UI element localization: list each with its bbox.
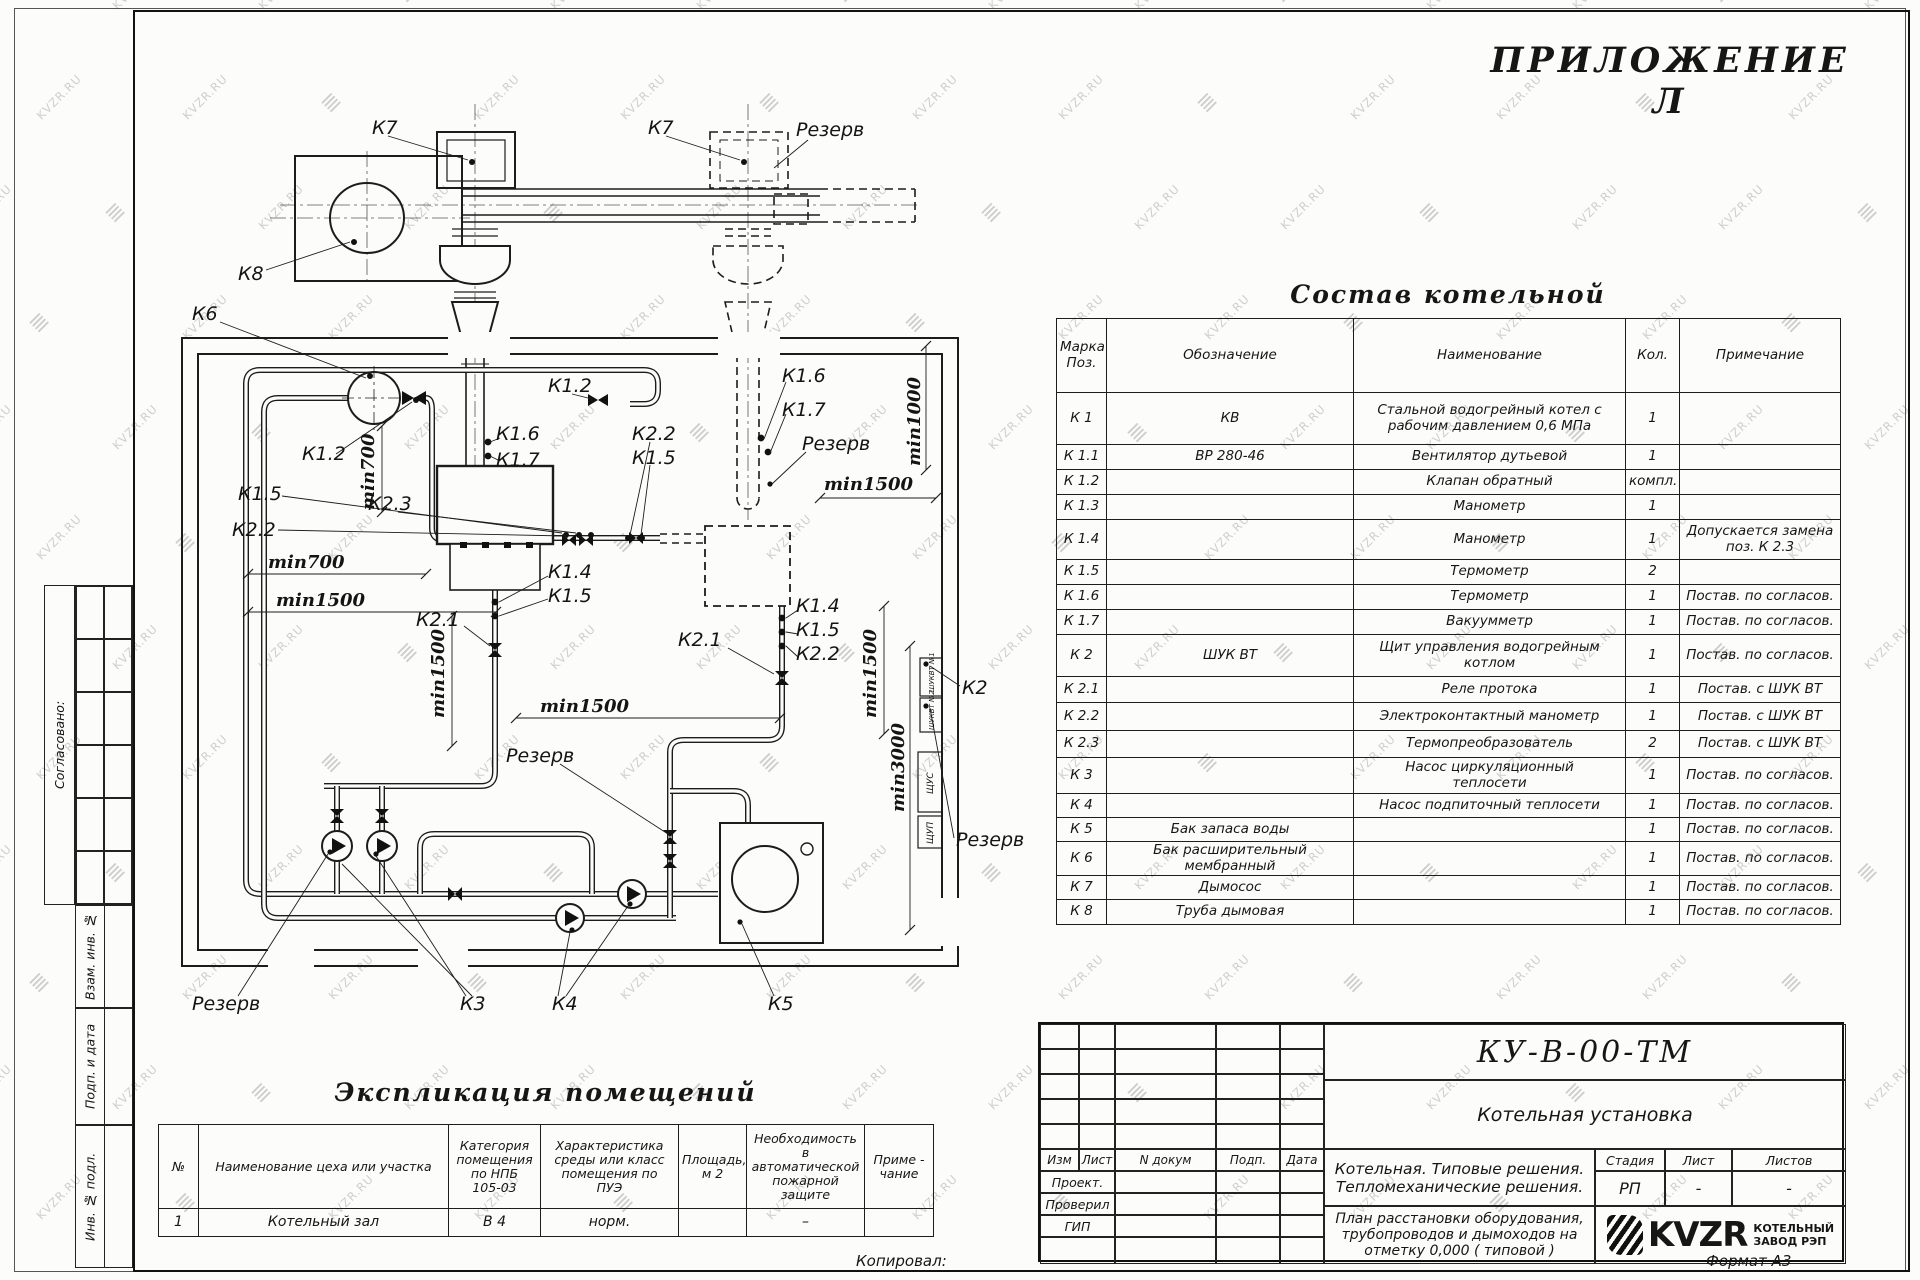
title-block-cell <box>1280 1237 1324 1264</box>
table-cell: К 1.6 <box>1057 585 1107 610</box>
column-header: № <box>159 1125 199 1209</box>
title-block-cell <box>1040 1024 1079 1049</box>
title-block-cell: Лист <box>1079 1149 1115 1171</box>
label-k12-left: К1.2 <box>302 443 346 465</box>
label-k22-left: К2.2 <box>232 519 276 541</box>
dim-min3000: min3000 <box>888 722 909 812</box>
table-cell: Допускается замена поз. К 2.3 <box>1680 520 1841 560</box>
title-block-cell: Дата <box>1280 1149 1324 1171</box>
table-cell: 2 <box>1626 560 1680 585</box>
boiler-room-plan: К7 К7 Резерв К8 К6 К1.2 К1.5 К2.2 К2.3 К… <box>120 46 1032 1031</box>
drawing-sheet: ≣KVZR.RUKVZR.RU≣KVZR.RUKVZR.RU≣KVZR.RUKV… <box>0 0 1920 1280</box>
table-cell <box>1354 876 1626 900</box>
title-block-cell <box>1115 1215 1216 1237</box>
label-k21-left: К2.1 <box>416 609 460 631</box>
kopiroval-label: Копировал: <box>856 1252 947 1270</box>
watermark: ≣ <box>392 0 423 8</box>
table-cell: 1 <box>1626 758 1680 794</box>
table-row: К 2ШУК ВТЩит управления водогрейным котл… <box>1057 635 1841 677</box>
table-cell: К 1.3 <box>1057 495 1107 520</box>
column-header: Обозначение <box>1107 319 1354 393</box>
title-block-cell <box>1079 1124 1115 1149</box>
label-k22-mid: К2.2 <box>632 423 676 445</box>
title-block-cell <box>1040 1099 1079 1124</box>
logo-text: KVZR <box>1648 1215 1748 1255</box>
stamp-soglasovano-text: Согласовано: <box>45 586 74 904</box>
table-cell <box>1107 520 1354 560</box>
table-row: К 5Бак запаса воды1Постав. по согласов. <box>1057 818 1841 842</box>
dim-min700-vert: min700 <box>358 433 379 510</box>
table-cell: Бак запаса воды <box>1107 818 1354 842</box>
table-cell: Щит управления водогрейным котлом <box>1354 635 1626 677</box>
table-cell: К 4 <box>1057 794 1107 818</box>
sheets-value: - <box>1732 1171 1846 1206</box>
title-block-cell <box>1115 1171 1216 1193</box>
watermark: ≣ <box>830 0 861 8</box>
table-row: К 8Труба дымовая1Постав. по согласов. <box>1057 900 1841 925</box>
table-cell: К 1.1 <box>1057 445 1107 470</box>
table-row: К 2.1Реле протока1Постав. с ШУК ВТ <box>1057 677 1841 703</box>
label-rezerv-center: Резерв <box>506 745 574 767</box>
table-cell: Постав. по согласов. <box>1680 818 1841 842</box>
column-header: Приме - чание <box>865 1125 934 1209</box>
watermark: KVZR.RU <box>0 182 14 233</box>
title-block-cell <box>1280 1193 1324 1215</box>
table-cell <box>1107 560 1354 585</box>
title-block: ИзмЛистN докумПодп.ДатаПроект.ПроверилГИ… <box>1038 1022 1844 1262</box>
table-cell: Манометр <box>1354 520 1626 560</box>
table-cell <box>1107 585 1354 610</box>
explication-table-grid: №Наименование цеха или участкаКатегория … <box>158 1124 934 1237</box>
label-k12-top: К1.2 <box>548 375 592 397</box>
storage-tank-k5 <box>720 823 823 943</box>
stamp-vzam-text: Взам. инв. № <box>76 906 104 1007</box>
label-k15-b1: К1.5 <box>548 585 592 607</box>
title-block-cell <box>1280 1049 1324 1074</box>
table-cell <box>1107 610 1354 635</box>
table-cell <box>1107 470 1354 495</box>
label-k16-right: К1.6 <box>782 365 826 387</box>
table-cell: Термопреобразователь <box>1354 731 1626 758</box>
table-row: К 6Бак расширительный мембранный1Постав.… <box>1057 842 1841 876</box>
title-block-cell: ГИП <box>1040 1215 1115 1237</box>
table-cell <box>1107 794 1354 818</box>
label-k8: К8 <box>238 263 264 285</box>
column-header: Кол. <box>1626 319 1680 393</box>
title-block-cell <box>1115 1099 1216 1124</box>
title-block-cell <box>1280 1099 1324 1124</box>
watermark: ≣ <box>1706 0 1737 8</box>
stamp-inv: Инв. № подл. <box>75 1125 133 1268</box>
label-k7-reserve: К7 <box>648 117 674 139</box>
title-block-cell <box>1216 1215 1280 1237</box>
title-block-cell <box>1115 1193 1216 1215</box>
title-block-cell: Подп. <box>1216 1149 1280 1171</box>
table-cell: 1 <box>1626 677 1680 703</box>
table-row: 1Котельный залВ 4норм.– <box>159 1209 934 1237</box>
title-block-cell <box>1079 1099 1115 1124</box>
sheet-text: План расстановки оборудования, трубопров… <box>1324 1206 1595 1264</box>
table-cell: Вакуумметр <box>1354 610 1626 635</box>
dim-min700: min700 <box>268 552 345 573</box>
table-cell: Постав. по согласов. <box>1680 876 1841 900</box>
table-cell: 1 <box>1626 900 1680 925</box>
explication-title: Экспликация помещений <box>158 1078 933 1107</box>
label-k3: К3 <box>460 993 486 1015</box>
sheet-value: - <box>1665 1171 1732 1206</box>
dim-min1500-leftv: min1500 <box>428 628 449 718</box>
table-cell <box>1680 495 1841 520</box>
table-cell: 1 <box>159 1209 199 1237</box>
column-header: Примечание <box>1680 319 1841 393</box>
table-cell <box>1354 900 1626 925</box>
dim-min1500-center: min1500 <box>540 696 630 717</box>
stage-label: Стадия <box>1595 1149 1665 1171</box>
table-cell: Постав. с ШУК ВТ <box>1680 731 1841 758</box>
document-code: КУ-В-00-ТМ <box>1324 1024 1846 1080</box>
stage-value: РП <box>1595 1171 1665 1206</box>
table-cell: Бак расширительный мембранный <box>1107 842 1354 876</box>
table-cell: Постав. с ШУК ВТ <box>1680 703 1841 731</box>
table-cell: К 2.3 <box>1057 731 1107 758</box>
logo-subtext: КОТЕЛЬНЫЙ ЗАВОД РЭП <box>1753 1222 1834 1248</box>
format-label: Формат А3 <box>1706 1252 1791 1270</box>
appendix-title: ПРИЛОЖЕНИЕ Л <box>1470 40 1870 122</box>
label-k16-left: К1.6 <box>496 423 540 445</box>
table-cell: К 1 <box>1057 393 1107 445</box>
table-row: К 4Насос подпиточный теплосети1Постав. п… <box>1057 794 1841 818</box>
table-cell: норм. <box>541 1209 679 1237</box>
table-row: К 2.3Термопреобразователь2Постав. с ШУК … <box>1057 731 1841 758</box>
table-cell: 1 <box>1626 445 1680 470</box>
stamp-inv-text: Инв. № подл. <box>76 1126 104 1267</box>
table-cell: К 8 <box>1057 900 1107 925</box>
table-cell: К 1.4 <box>1057 520 1107 560</box>
dim-min1000: min1000 <box>904 376 925 466</box>
table-cell: ШУК ВТ <box>1107 635 1354 677</box>
table-cell: К 1.7 <box>1057 610 1107 635</box>
table-cell: Котельный зал <box>199 1209 449 1237</box>
title-block-cell <box>1216 1049 1280 1074</box>
table-cell: Постав. по согласов. <box>1680 610 1841 635</box>
title-block-cell <box>1115 1124 1216 1149</box>
title-block-cell <box>1216 1099 1280 1124</box>
label-k15-left: К1.5 <box>238 483 282 505</box>
column-header: Площадь, м 2 <box>679 1125 747 1209</box>
title-block-cell <box>1115 1074 1216 1099</box>
expansion-tank-k6 <box>342 366 406 430</box>
watermark: KVZR.RU <box>0 402 14 453</box>
table-row: К 1.7Вакуумметр1Постав. по согласов. <box>1057 610 1841 635</box>
table-cell: Реле протока <box>1354 677 1626 703</box>
explication-table: №Наименование цеха или участкаКатегория … <box>158 1124 934 1237</box>
table-cell: 1 <box>1626 794 1680 818</box>
table-cell: ВР 280-46 <box>1107 445 1354 470</box>
table-cell: К 1.5 <box>1057 560 1107 585</box>
sostav-table-title: Состав котельной <box>1056 280 1840 309</box>
table-cell: К 3 <box>1057 758 1107 794</box>
title-block-cell <box>1115 1049 1216 1074</box>
label-k14-b2: К1.4 <box>796 595 840 617</box>
sheets-label: Листов <box>1732 1149 1846 1171</box>
table-cell <box>679 1209 747 1237</box>
watermark: KVZR.RU <box>0 1062 14 1113</box>
table-cell: 1 <box>1626 876 1680 900</box>
table-cell: 2 <box>1626 731 1680 758</box>
sostav-table: Марка Поз.ОбозначениеНаименованиеКол.При… <box>1056 318 1841 925</box>
label-k2: К2 <box>962 677 988 699</box>
document-name: Котельная установка <box>1324 1080 1846 1149</box>
table-row: К 1.6Термометр1Постав. по согласов. <box>1057 585 1841 610</box>
table-row: К 1.2Клапан обратныйкомпл. <box>1057 470 1841 495</box>
table-cell <box>1680 445 1841 470</box>
table-row: К 1.5Термометр2 <box>1057 560 1841 585</box>
label-k15-b2: К1.5 <box>796 619 840 641</box>
title-block-cell <box>1280 1215 1324 1237</box>
label-rezerv-top: Резерв <box>796 119 864 141</box>
table-cell: 1 <box>1626 635 1680 677</box>
table-cell: Электроконтактный манометр <box>1354 703 1626 731</box>
title-block-cell <box>1040 1049 1079 1074</box>
title-block-cell <box>1079 1074 1115 1099</box>
table-cell: К 7 <box>1057 876 1107 900</box>
table-cell <box>1107 677 1354 703</box>
title-block-cell: Проект. <box>1040 1171 1115 1193</box>
smoke-exhauster-k7 <box>437 132 515 466</box>
table-cell: Термометр <box>1354 585 1626 610</box>
sostav-table-grid: Марка Поз.ОбозначениеНаименованиеКол.При… <box>1056 318 1841 925</box>
dim-min1500-left: min1500 <box>276 590 366 611</box>
table-cell: Термометр <box>1354 560 1626 585</box>
title-block-cell <box>1115 1237 1216 1264</box>
label-k21-right: К2.1 <box>678 629 722 651</box>
table-row: К 2.2Электроконтактный манометр1Постав. … <box>1057 703 1841 731</box>
table-cell <box>1680 393 1841 445</box>
column-header: Наименование <box>1354 319 1626 393</box>
table-cell <box>1354 842 1626 876</box>
table-cell: Постав. по согласов. <box>1680 794 1841 818</box>
watermark: KVZR.RU <box>0 842 14 893</box>
dim-min1500-rightv: min1500 <box>860 628 881 718</box>
table-cell: 1 <box>1626 842 1680 876</box>
table-row: К 1.1ВР 280-46Вентилятор дутьевой1 <box>1057 445 1841 470</box>
flue-duct <box>462 189 915 222</box>
table-cell: К 2.2 <box>1057 703 1107 731</box>
panel-shukvt2-label: ШУКВТ №2 <box>928 690 936 730</box>
stamp-soglasovano-label: Согласовано: <box>44 585 75 905</box>
project-text: Котельная. Типовые решения. Тепломеханич… <box>1324 1149 1595 1206</box>
table-cell: Вентилятор дутьевой <box>1354 445 1626 470</box>
panel-shukvt1-label: ШУКВТ №1 <box>928 652 936 692</box>
title-block-cell <box>1280 1124 1324 1149</box>
panel-schup-label: ЩУП <box>926 822 936 844</box>
title-block-cell <box>1040 1237 1115 1264</box>
table-cell: Труба дымовая <box>1107 900 1354 925</box>
title-block-cell <box>1216 1124 1280 1149</box>
label-k15-mid: К1.5 <box>632 447 676 469</box>
table-cell: 1 <box>1626 818 1680 842</box>
label-rezerv-right: Резерв <box>956 829 1024 851</box>
label-k7: К7 <box>372 117 398 139</box>
table-row: К 3Насос циркуляционный теплосети1Постав… <box>1057 758 1841 794</box>
label-k22-b2: К2.2 <box>796 643 840 665</box>
table-cell: Дымосос <box>1107 876 1354 900</box>
title-block-cell <box>1115 1024 1216 1049</box>
label-k17-left: К1.7 <box>496 449 540 471</box>
table-cell: Постав. по согласов. <box>1680 842 1841 876</box>
label-k4: К4 <box>552 993 578 1015</box>
title-block-cell <box>1216 1193 1280 1215</box>
table-row: К 7Дымосос1Постав. по согласов. <box>1057 876 1841 900</box>
table-cell: 1 <box>1626 703 1680 731</box>
kvzr-logo-icon <box>1607 1215 1643 1255</box>
title-block-cell: N докум <box>1115 1149 1216 1171</box>
column-header: Категория помещения по НПБ 105-03 <box>449 1125 541 1209</box>
title-block-cell <box>1216 1024 1280 1049</box>
panel-schus-label: ЩУС <box>926 772 936 794</box>
table-row: К 1.3Манометр1 <box>1057 495 1841 520</box>
column-header: Характеристика среды или класс помещения… <box>541 1125 679 1209</box>
table-cell: 1 <box>1626 393 1680 445</box>
table-cell: 1 <box>1626 585 1680 610</box>
table-cell: 1 <box>1626 495 1680 520</box>
column-header: Необходимость в автоматической пожарной … <box>747 1125 865 1209</box>
table-cell: Постав. с ШУК ВТ <box>1680 677 1841 703</box>
label-k17-right: К1.7 <box>782 399 826 421</box>
title-block-cell <box>1280 1024 1324 1049</box>
table-cell: – <box>747 1209 865 1237</box>
title-block-cell <box>1079 1049 1115 1074</box>
table-cell: К 2 <box>1057 635 1107 677</box>
stamp-podp-text: Подп. и дата <box>76 1009 104 1124</box>
table-cell: Постав. по согласов. <box>1680 900 1841 925</box>
table-cell: К 6 <box>1057 842 1107 876</box>
instrument-points <box>327 159 928 933</box>
table-cell: К 1.2 <box>1057 470 1107 495</box>
watermark: ≣ <box>1268 0 1299 8</box>
table-cell: Насос подпиточный теплосети <box>1354 794 1626 818</box>
drawing-labels: К7 К7 Резерв К8 К6 К1.2 К1.5 К2.2 К2.3 К… <box>192 117 1024 1015</box>
table-cell: В 4 <box>449 1209 541 1237</box>
table-cell: Постав. по согласов. <box>1680 635 1841 677</box>
title-block-cell <box>1079 1024 1115 1049</box>
column-header: Наименование цеха или участка <box>199 1125 449 1209</box>
table-cell <box>1107 731 1354 758</box>
label-rezerv-mid: Резерв <box>802 433 870 455</box>
wall-openings <box>268 332 962 970</box>
table-cell: Постав. по согласов. <box>1680 758 1841 794</box>
title-block-cell: Изм <box>1040 1149 1079 1171</box>
column-header: Марка Поз. <box>1057 319 1107 393</box>
label-k6: К6 <box>192 303 218 325</box>
sheet-label: Лист <box>1665 1149 1732 1171</box>
title-block-cell <box>1216 1074 1280 1099</box>
title-block-cell <box>1040 1124 1079 1149</box>
title-block-cell <box>1040 1074 1079 1099</box>
title-block-cell <box>1216 1171 1280 1193</box>
table-cell: Насос циркуляционный теплосети <box>1354 758 1626 794</box>
table-cell <box>1354 818 1626 842</box>
title-block-cell <box>1216 1237 1280 1264</box>
title-block-cell <box>1280 1074 1324 1099</box>
table-cell: Манометр <box>1354 495 1626 520</box>
table-row: К 1.4Манометр1Допускается замена поз. К … <box>1057 520 1841 560</box>
table-cell <box>865 1209 934 1237</box>
table-cell <box>1107 495 1354 520</box>
table-cell: компл. <box>1626 470 1680 495</box>
title-block-cell: Проверил <box>1040 1193 1115 1215</box>
table-cell <box>1680 470 1841 495</box>
table-cell: 1 <box>1626 610 1680 635</box>
label-k5: К5 <box>768 993 794 1015</box>
table-cell: Постав. по согласов. <box>1680 585 1841 610</box>
table-cell: К 2.1 <box>1057 677 1107 703</box>
table-cell <box>1107 703 1354 731</box>
title-block-cell <box>1280 1171 1324 1193</box>
table-cell: КВ <box>1107 393 1354 445</box>
table-cell: Стальной водогрейный котел с рабочим дав… <box>1354 393 1626 445</box>
table-cell <box>1680 560 1841 585</box>
pipe-reserve-dashed <box>660 534 705 543</box>
label-rezerv-bottom: Резерв <box>192 993 260 1015</box>
label-k14-b1: К1.4 <box>548 561 592 583</box>
dim-min1500-right: min1500 <box>824 474 914 495</box>
table-cell: 1 <box>1626 520 1680 560</box>
table-row: К 1КВСтальной водогрейный котел с рабочи… <box>1057 393 1841 445</box>
boiler-reserve <box>705 526 790 606</box>
table-cell <box>1107 758 1354 794</box>
table-cell: К 5 <box>1057 818 1107 842</box>
table-cell: Клапан обратный <box>1354 470 1626 495</box>
